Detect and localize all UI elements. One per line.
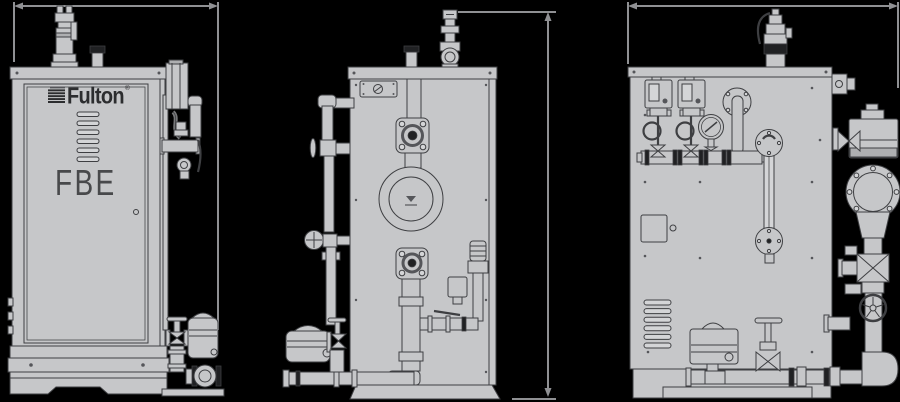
side-nameplate <box>360 81 397 97</box>
model-label: FBE <box>55 163 117 203</box>
side-top-pipe <box>407 79 421 119</box>
side-lower-flange <box>396 248 428 279</box>
front-view: Fulton ® FBE <box>8 2 224 396</box>
side-base-skirt <box>350 385 500 399</box>
technical-drawing: Fulton ® FBE <box>0 0 900 402</box>
front-base-skirt <box>8 346 169 394</box>
rear-safety-relief-valve <box>758 9 792 67</box>
side-feed-pump <box>286 318 346 372</box>
side-view <box>283 10 556 399</box>
side-safety-valve <box>440 10 460 69</box>
front-side-piping <box>160 60 202 330</box>
side-handhole-flange <box>379 167 443 231</box>
rear-external-piping <box>824 74 900 386</box>
side-left-piping <box>305 95 355 325</box>
side-cabinet <box>348 67 500 399</box>
rear-view <box>628 2 900 398</box>
brand-logo-text: Fulton <box>67 82 124 109</box>
registered-mark: ® <box>125 84 130 92</box>
front-exhaust-stack <box>90 46 105 67</box>
side-exhaust-stack <box>404 46 419 67</box>
front-safety-valve <box>51 6 78 67</box>
front-feed-pump <box>162 313 224 396</box>
